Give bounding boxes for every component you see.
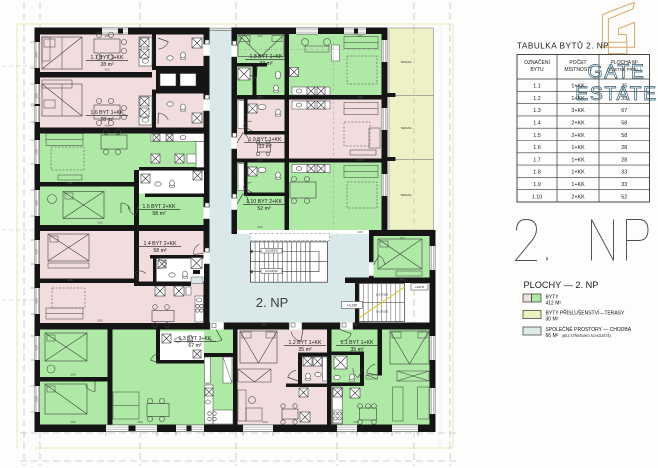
- svg-text:2330: 2330: [36, 396, 39, 402]
- svg-text:PLOCHY — 2. NP: PLOCHY — 2. NP: [524, 280, 599, 290]
- svg-text:2330: 2330: [36, 298, 39, 304]
- svg-text:52: 52: [621, 194, 627, 200]
- svg-text:2690: 2690: [353, 421, 359, 424]
- svg-text:GATE: GATE: [587, 61, 645, 83]
- svg-text:2330: 2330: [36, 200, 39, 206]
- svg-text:3200: 3200: [357, 159, 363, 162]
- svg-text:28: 28: [621, 157, 627, 163]
- svg-text:1.5: 1.5: [533, 133, 541, 139]
- svg-text:TERASA: TERASA: [400, 126, 411, 130]
- svg-text:2620: 2620: [257, 35, 263, 38]
- svg-text:ESTATE: ESTATE: [575, 83, 658, 105]
- svg-text:1×176/280: 1×176/280: [376, 293, 389, 297]
- svg-text:4330: 4330: [104, 125, 110, 128]
- svg-text:1+KK: 1+KK: [571, 182, 585, 188]
- svg-text:28: 28: [621, 145, 627, 151]
- svg-text:2690: 2690: [262, 421, 268, 424]
- svg-text:3200: 3200: [357, 231, 363, 234]
- svg-text:2100: 2100: [36, 345, 39, 351]
- svg-text:2690: 2690: [261, 323, 267, 326]
- svg-text:2470: 2470: [36, 52, 39, 58]
- svg-text:3460: 3460: [399, 237, 405, 240]
- svg-text:1.6: 1.6: [533, 145, 541, 151]
- svg-text:28 m²: 28 m²: [100, 117, 114, 123]
- svg-text:2690: 2690: [352, 323, 358, 326]
- svg-text:TERASA: TERASA: [400, 193, 411, 197]
- svg-text:33: 33: [621, 182, 627, 188]
- svg-text:2+KK: 2+KK: [571, 133, 585, 139]
- svg-text:POČET: POČET: [569, 59, 586, 66]
- svg-text:2100: 2100: [36, 249, 39, 255]
- svg-text:4330: 4330: [104, 35, 110, 38]
- svg-text:58: 58: [621, 133, 627, 139]
- svg-text:1.1: 1.1: [533, 84, 541, 90]
- svg-text:3200: 3200: [357, 96, 363, 99]
- svg-text:5150: 5150: [97, 320, 103, 323]
- svg-text:2. NP: 2. NP: [256, 295, 289, 310]
- svg-text:33 m²: 33 m²: [258, 144, 272, 150]
- svg-text:2620: 2620: [257, 96, 263, 99]
- svg-text:SPOLEČNÉ PROSTORY — CHODBA: SPOLEČNÉ PROSTORY — CHODBA: [546, 326, 632, 333]
- svg-text:2660: 2660: [70, 374, 76, 377]
- svg-text:67 m²: 67 m²: [188, 343, 202, 349]
- svg-text:3+KK: 3+KK: [571, 108, 585, 114]
- svg-text:67: 67: [621, 108, 627, 114]
- svg-text:3460: 3460: [399, 278, 405, 281]
- svg-text:1+KK: 1+KK: [571, 157, 585, 163]
- svg-text:2+KK: 2+KK: [571, 121, 585, 127]
- svg-text:10×165/300: 10×165/300: [265, 270, 278, 273]
- svg-text:+4,230: +4,230: [347, 304, 358, 308]
- svg-text:TABULKA BYTŮ 2. NP: TABULKA BYTŮ 2. NP: [517, 40, 609, 51]
- svg-text:3390: 3390: [70, 421, 76, 424]
- svg-text:1.8: 1.8: [533, 170, 541, 176]
- svg-text:1×176/280: 1×176/280: [376, 310, 389, 314]
- svg-text:52 m²: 52 m²: [257, 206, 271, 212]
- svg-text:66 M²: 66 M²: [546, 333, 559, 339]
- svg-text:1.3: 1.3: [533, 108, 541, 114]
- svg-text:TERASA: TERASA: [400, 60, 411, 64]
- svg-text:1.7: 1.7: [533, 157, 541, 163]
- svg-text:1.2: 1.2: [533, 96, 541, 102]
- svg-text:(BEZ STŘEŠNÍHO SCHODIŠTĚ): (BEZ STŘEŠNÍHO SCHODIŠTĚ): [562, 333, 611, 338]
- svg-text:+2AU5: +2AU5: [415, 285, 425, 289]
- svg-text:35 m²: 35 m²: [298, 347, 312, 353]
- svg-text:58 m²: 58 m²: [153, 248, 167, 254]
- svg-text:33 m²: 33 m²: [259, 61, 273, 67]
- svg-text:33: 33: [621, 170, 627, 176]
- svg-text:28 m²: 28 m²: [100, 62, 114, 68]
- svg-text:2620: 2620: [257, 226, 263, 229]
- svg-text:412 M²: 412 M²: [546, 301, 562, 307]
- svg-text:58 m²: 58 m²: [152, 211, 166, 217]
- svg-text:58: 58: [621, 121, 627, 127]
- svg-text:1.4: 1.4: [533, 121, 541, 127]
- svg-text:5150: 5150: [97, 222, 103, 225]
- svg-text:4330: 4330: [104, 69, 110, 72]
- svg-text:10×165/300: 10×165/300: [265, 250, 278, 253]
- svg-text:1.9: 1.9: [533, 182, 541, 188]
- svg-text:2100: 2100: [36, 149, 39, 155]
- svg-text:1.10: 1.10: [532, 194, 543, 200]
- svg-text:OZNAČENÍ: OZNAČENÍ: [524, 59, 550, 66]
- svg-text:1800: 1800: [36, 93, 39, 99]
- svg-text:2620: 2620: [257, 159, 263, 162]
- svg-text:30 M²: 30 M²: [546, 317, 559, 323]
- svg-text:1+KK: 1+KK: [571, 145, 585, 151]
- svg-text:BYTY PŘÍSLUŠENSTVÍ—TERASY: BYTY PŘÍSLUŠENSTVÍ—TERASY: [546, 309, 625, 317]
- svg-text:1+KK: 1+KK: [571, 170, 585, 176]
- svg-text:2+KK: 2+KK: [571, 194, 585, 200]
- svg-text:35 m²: 35 m²: [350, 347, 364, 353]
- svg-text:3150: 3150: [67, 182, 73, 185]
- svg-text:1800: 1800: [137, 421, 143, 424]
- svg-text:BYTU: BYTU: [530, 67, 544, 73]
- svg-text:3150: 3150: [67, 279, 73, 282]
- svg-text:3200: 3200: [357, 35, 363, 38]
